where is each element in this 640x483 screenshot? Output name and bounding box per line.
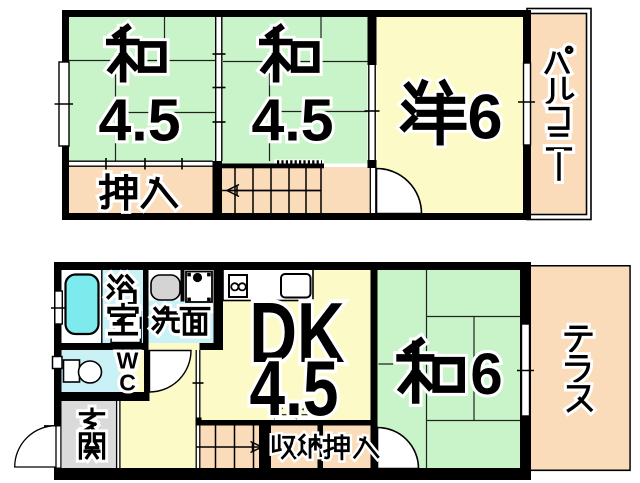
svg-text:4.5: 4.5 — [251, 88, 333, 154]
svg-text:4.5: 4.5 — [98, 88, 180, 154]
svg-text:6: 6 — [470, 342, 502, 407]
svg-text:4.5: 4.5 — [250, 345, 339, 432]
svg-text:C: C — [119, 370, 136, 396]
svg-text:6: 6 — [467, 83, 502, 153]
